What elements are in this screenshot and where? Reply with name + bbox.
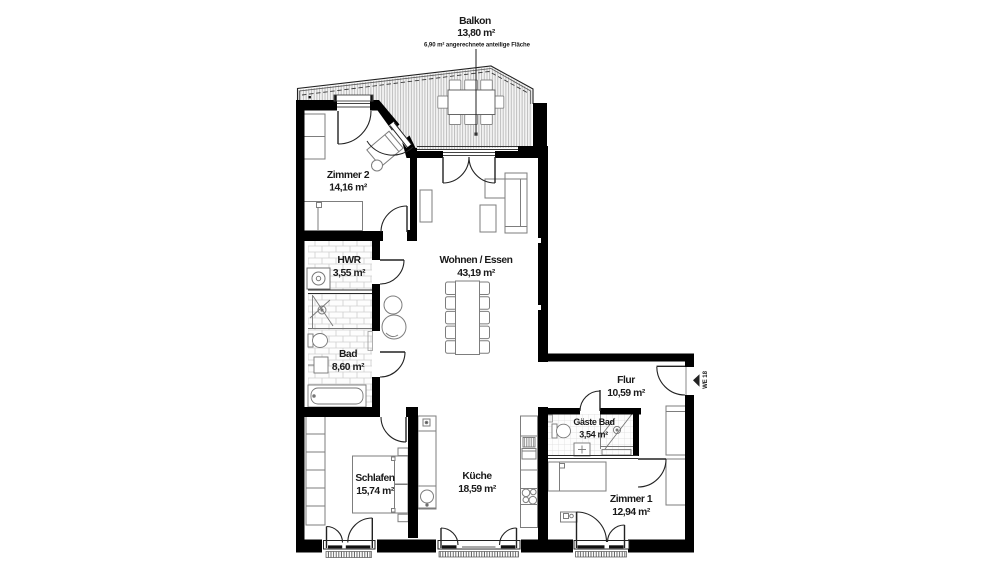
svg-text:Schlafen: Schlafen <box>355 473 394 484</box>
svg-text:Zimmer 2: Zimmer 2 <box>327 170 370 181</box>
svg-text:18,59 m²: 18,59 m² <box>458 484 497 495</box>
svg-text:3,54 m²: 3,54 m² <box>579 430 608 440</box>
svg-text:3,55 m²: 3,55 m² <box>333 268 366 279</box>
svg-text:6,90 m² angerechnete anteilige: 6,90 m² angerechnete anteilige Fläche <box>424 42 531 49</box>
svg-text:Balkon: Balkon <box>459 16 491 27</box>
svg-text:Küche: Küche <box>462 471 492 482</box>
svg-text:Gäste Bad: Gäste Bad <box>573 417 614 427</box>
svg-text:15,74 m²: 15,74 m² <box>356 486 395 497</box>
svg-text:Wohnen / Essen: Wohnen / Essen <box>439 255 512 266</box>
svg-text:10,59 m²: 10,59 m² <box>607 388 646 399</box>
svg-text:WE 18: WE 18 <box>703 370 709 388</box>
svg-text:14,16 m²: 14,16 m² <box>329 183 368 194</box>
svg-text:Zimmer 1: Zimmer 1 <box>610 494 653 505</box>
svg-text:Bad: Bad <box>339 349 357 360</box>
svg-text:12,94 m²: 12,94 m² <box>612 507 651 518</box>
svg-text:43,19 m²: 43,19 m² <box>457 268 496 279</box>
svg-text:HWR: HWR <box>337 255 361 266</box>
svg-text:8,60 m²: 8,60 m² <box>332 362 365 373</box>
svg-text:13,80 m²: 13,80 m² <box>457 28 496 39</box>
svg-text:Flur: Flur <box>617 375 635 386</box>
